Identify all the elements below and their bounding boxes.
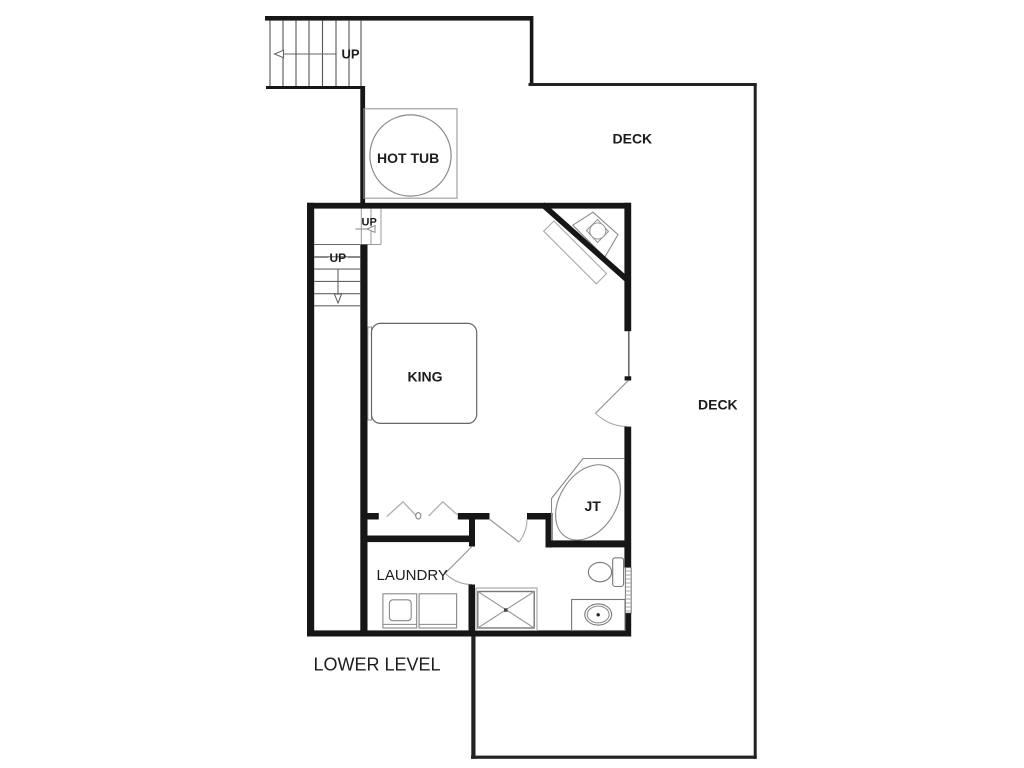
svg-text:HOT TUB: HOT TUB: [377, 150, 439, 166]
svg-text:KING: KING: [408, 369, 443, 385]
svg-text:DECK: DECK: [613, 131, 653, 147]
svg-text:UP: UP: [330, 251, 347, 265]
svg-text:LAUNDRY: LAUNDRY: [377, 567, 448, 584]
svg-text:JT: JT: [585, 498, 602, 514]
svg-text:LOWER LEVEL: LOWER LEVEL: [314, 655, 441, 675]
svg-text:UP: UP: [342, 47, 360, 62]
svg-text:DECK: DECK: [698, 397, 738, 413]
